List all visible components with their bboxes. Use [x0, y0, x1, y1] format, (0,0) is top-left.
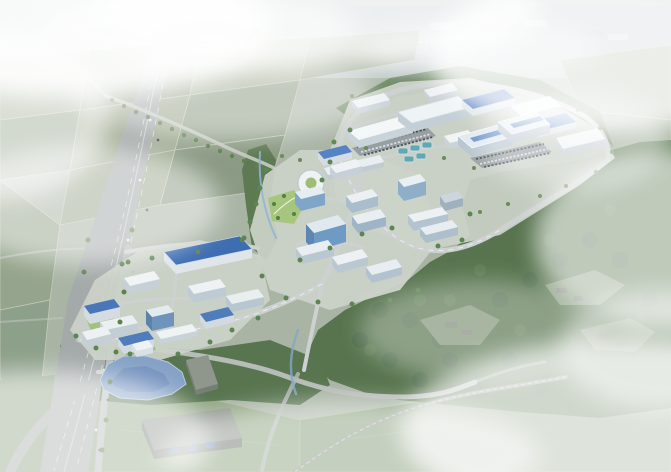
site-trees: [230, 328, 235, 333]
site-trees: [248, 220, 253, 225]
site-trees: [176, 352, 181, 357]
ring-building-courtyard: [306, 178, 317, 189]
perimeter-trees: [506, 202, 510, 206]
street-trees: [242, 159, 246, 163]
treatment-tank: [410, 145, 420, 151]
site-trees: [196, 250, 201, 255]
site-trees: [348, 128, 353, 133]
forest-texture-light: [474, 264, 486, 276]
treatment-tank: [398, 148, 408, 154]
site-trees: [94, 346, 99, 351]
street-trees: [206, 144, 210, 148]
site-trees: [468, 212, 473, 217]
perimeter-trees: [478, 210, 482, 214]
perimeter-trees: [472, 166, 476, 170]
site-trees: [208, 340, 213, 345]
site-trees: [390, 226, 395, 231]
site-trees: [256, 316, 261, 321]
site-trees: [298, 258, 303, 263]
mist-cloud: [480, 90, 670, 190]
site-trees: [260, 274, 265, 279]
perimeter-trees: [280, 154, 284, 158]
site-trees: [258, 186, 263, 191]
perimeter-trees: [364, 146, 368, 150]
park-trees: [272, 202, 276, 206]
street-trees: [254, 164, 258, 168]
site-trees: [350, 302, 355, 307]
site-trees: [74, 334, 79, 339]
mist-cloud: [360, 20, 600, 76]
site-trees: [316, 300, 321, 305]
perimeter-trees: [298, 158, 302, 162]
street-trees: [230, 154, 234, 158]
site-trees: [360, 232, 365, 237]
treatment-tank: [416, 153, 426, 159]
site-trees: [264, 168, 269, 173]
field: [0, 300, 50, 380]
perimeter-trees: [386, 80, 390, 84]
aerial-rendering-canvas: [0, 0, 671, 472]
highway-side-trees: [114, 350, 119, 355]
screenshot-root: [0, 0, 671, 472]
perimeter-trees: [442, 156, 446, 160]
park-trees: [292, 212, 296, 216]
site-trees: [240, 238, 245, 243]
highway-side-trees: [82, 270, 87, 275]
perimeter-trees: [538, 194, 542, 198]
site-trees: [254, 202, 259, 207]
highway-side-trees: [122, 290, 127, 295]
site-trees: [436, 244, 441, 249]
treatment-tank: [404, 156, 414, 162]
highway-side-trees: [118, 320, 123, 325]
highway-cars-dark: [157, 139, 160, 142]
site-trees: [332, 140, 337, 145]
site-trees: [460, 238, 465, 243]
site-trees: [128, 352, 133, 357]
park-trees: [282, 194, 286, 198]
park-trees: [276, 216, 280, 220]
site-trees: [284, 296, 289, 301]
perimeter-trees: [426, 74, 430, 78]
street-trees: [218, 149, 222, 153]
treatment-tank: [422, 142, 432, 148]
site-trees: [328, 160, 333, 165]
site-trees: [320, 178, 325, 183]
site-trees: [328, 246, 333, 251]
